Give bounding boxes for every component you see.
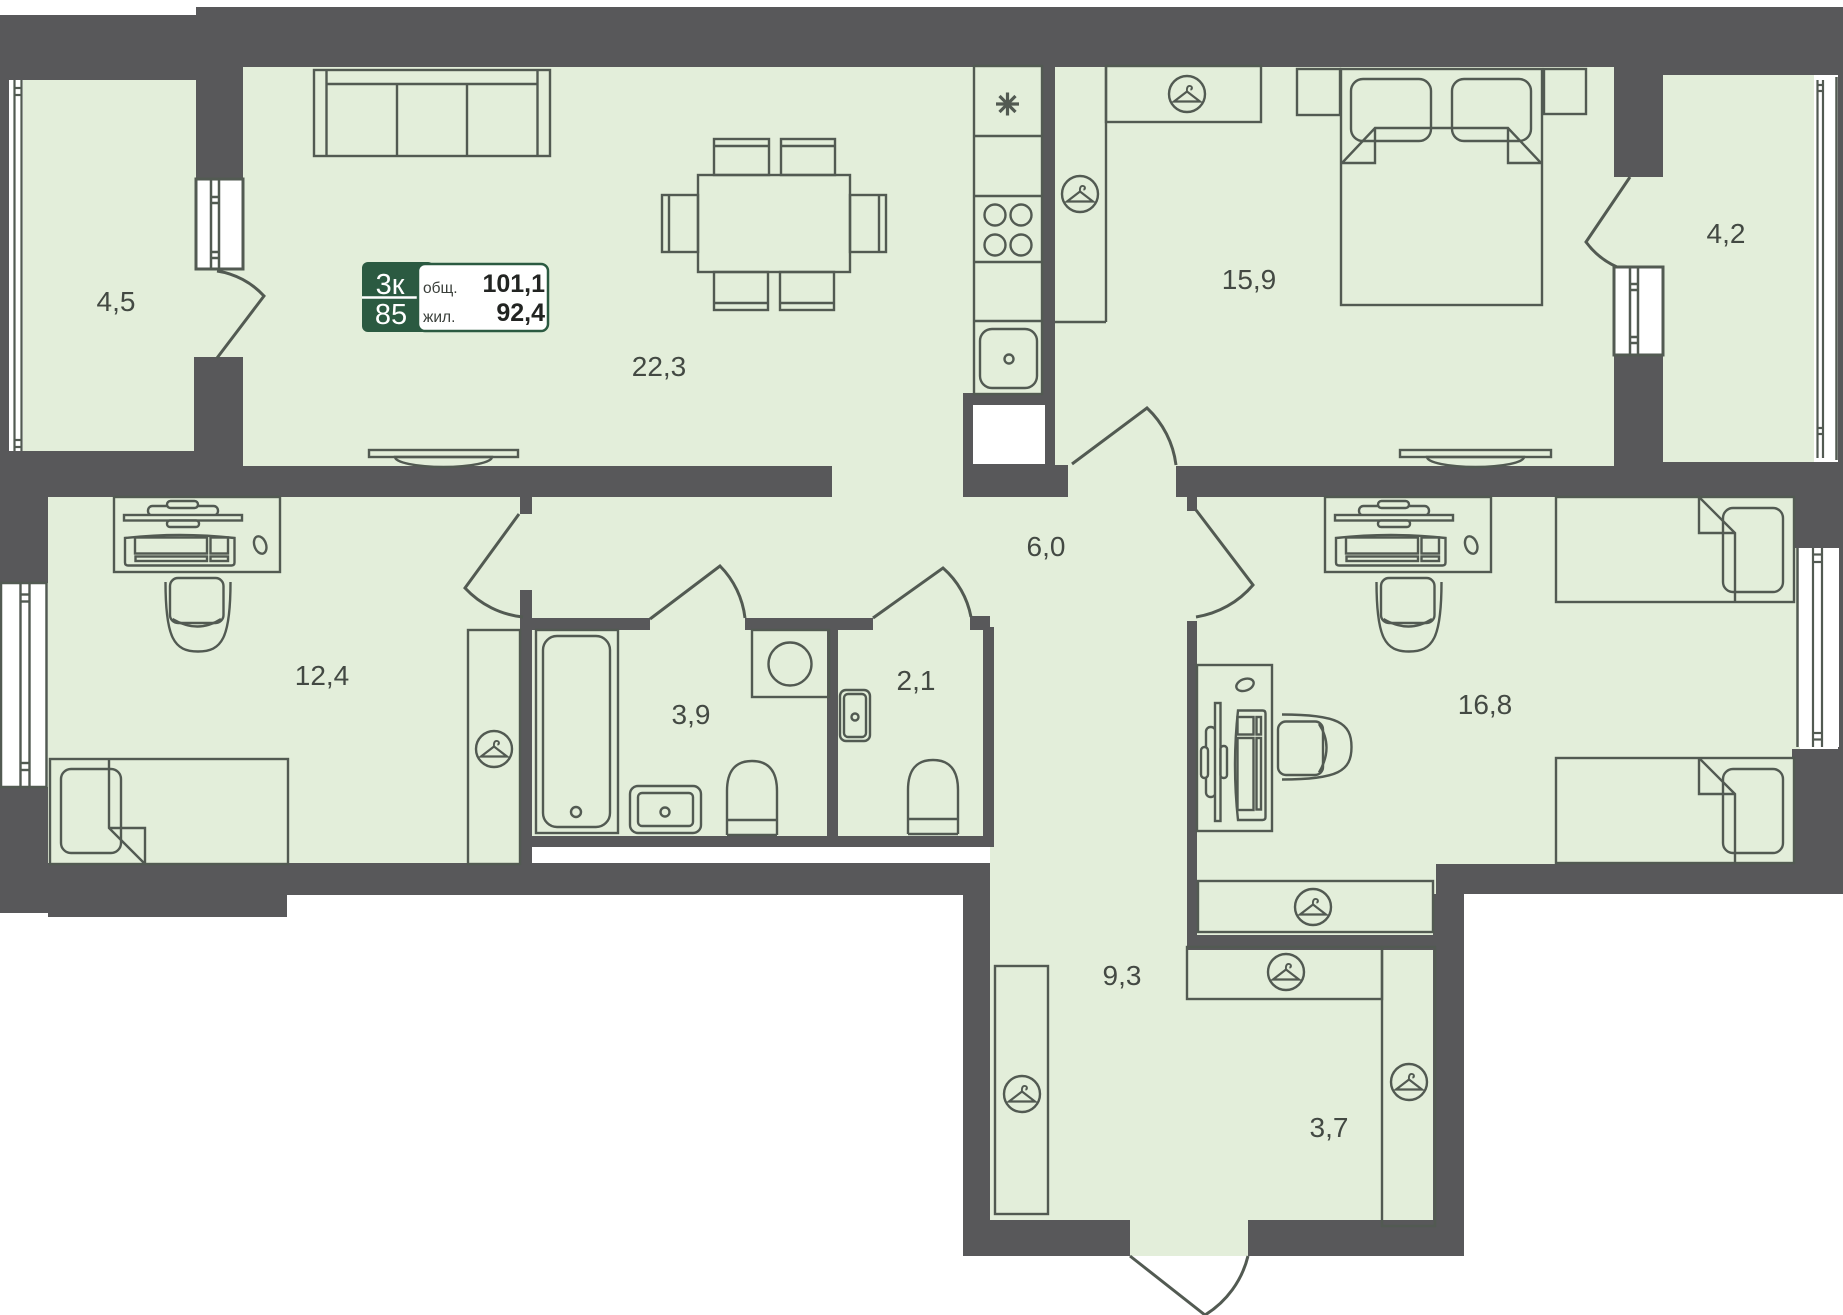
svg-text:общ.: общ. — [423, 280, 458, 297]
svg-text:85: 85 — [375, 299, 407, 331]
svg-text:3к: 3к — [376, 269, 405, 301]
svg-text:3,7: 3,7 — [1310, 1112, 1349, 1143]
svg-text:15,9: 15,9 — [1222, 264, 1277, 295]
svg-text:22,3: 22,3 — [632, 351, 687, 382]
svg-text:4,5: 4,5 — [97, 286, 136, 317]
svg-text:6,0: 6,0 — [1027, 531, 1066, 562]
svg-text:101,1: 101,1 — [482, 270, 545, 298]
svg-text:жил.: жил. — [423, 309, 455, 326]
svg-text:2,1: 2,1 — [897, 665, 936, 696]
svg-text:92,4: 92,4 — [496, 299, 545, 327]
svg-text:4,2: 4,2 — [1707, 218, 1746, 249]
svg-text:12,4: 12,4 — [295, 660, 350, 691]
svg-text:16,8: 16,8 — [1458, 689, 1513, 720]
svg-text:9,3: 9,3 — [1103, 960, 1142, 991]
svg-text:3,9: 3,9 — [672, 699, 711, 730]
